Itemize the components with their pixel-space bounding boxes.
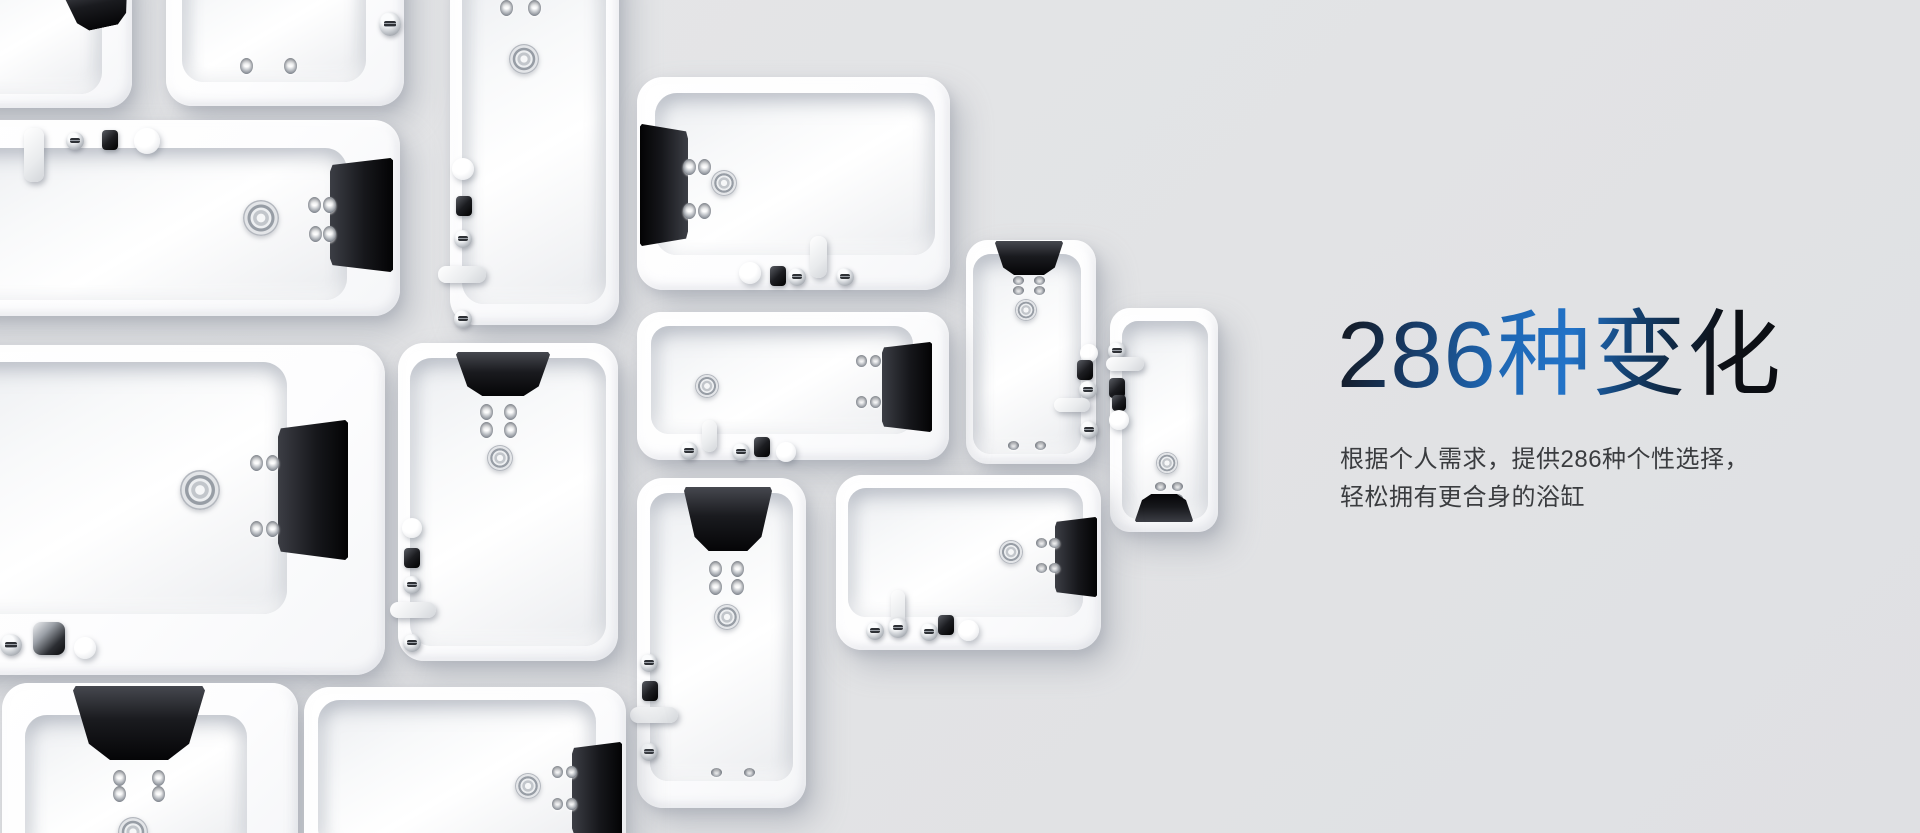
knob-chrome [1080, 421, 1098, 439]
faucet-lever [390, 602, 436, 618]
tub-basin [182, 0, 366, 82]
faucet-lever [810, 236, 827, 278]
knob-dark [102, 130, 118, 150]
faucet-lever [630, 707, 678, 723]
jet-nozzle [1035, 441, 1046, 450]
tub-basin [0, 362, 287, 614]
jet-nozzle [528, 0, 541, 16]
knob-dark [1077, 360, 1093, 380]
jet-nozzle [323, 226, 336, 242]
jet-nozzle [698, 159, 711, 175]
headline-title: 286种变化 [1337, 303, 1782, 406]
jet-nozzle [480, 404, 493, 420]
knob-white [452, 158, 474, 180]
tub-basin [651, 326, 913, 434]
jet-nozzle [698, 203, 711, 219]
jet-nozzle [552, 766, 563, 778]
jet-nozzle [266, 455, 279, 471]
jet-nozzle [856, 396, 867, 408]
drain [714, 604, 740, 630]
headline-subtitle: 根据个人需求，提供286种个性选择， 轻松拥有更合身的浴缸 [1340, 441, 1749, 517]
faucet-lever [24, 128, 44, 182]
headrest-cushion [330, 158, 393, 272]
jet-nozzle [113, 786, 126, 802]
jet-nozzle [683, 203, 696, 219]
knob-chrome [640, 654, 658, 672]
jet-nozzle [566, 798, 577, 810]
jet-nozzle [856, 355, 867, 367]
drain [711, 170, 737, 196]
drain [999, 540, 1023, 564]
knob-chrome [680, 442, 698, 460]
knob-chrome [640, 743, 658, 761]
jet-nozzle [731, 561, 744, 577]
drain [515, 773, 541, 799]
drain [487, 445, 513, 471]
headrest-cushion [1055, 517, 1097, 597]
knob-white [776, 442, 796, 462]
jet-nozzle [480, 422, 493, 438]
jet-nozzle [1013, 286, 1024, 295]
jet-nozzle [1013, 276, 1024, 285]
jet-nozzle [1049, 538, 1060, 548]
knob-white [134, 128, 160, 154]
knob-white [739, 262, 761, 284]
knob-dark [770, 266, 786, 286]
tub-basin [973, 254, 1081, 454]
jet-nozzle [566, 766, 577, 778]
knob-chrome [866, 622, 884, 640]
knob-chrome [1079, 381, 1097, 399]
faucet-lever [1106, 357, 1144, 371]
knob-dark [642, 681, 658, 701]
knob-chrome [788, 268, 806, 286]
jet-nozzle [1034, 286, 1045, 295]
jet-nozzle [1172, 482, 1183, 491]
knob-chrome [66, 132, 84, 150]
jet-nozzle [1008, 441, 1019, 450]
jet-nozzle [1155, 482, 1166, 491]
knob-chrome [836, 268, 854, 286]
jet-nozzle [284, 58, 297, 74]
faucet-lever [1054, 398, 1090, 412]
knob-chrome [379, 12, 401, 36]
subtitle-line-1: 根据个人需求，提供286种个性选择， [1340, 441, 1749, 479]
subtitle-line-2: 轻松拥有更合身的浴缸 [1340, 479, 1749, 517]
jet-nozzle [250, 455, 263, 471]
jet-nozzle [744, 768, 755, 777]
jet-nozzle [683, 159, 696, 175]
jet-nozzle [709, 561, 722, 577]
jet-nozzle [323, 197, 336, 213]
knob-chrome [403, 634, 421, 652]
headrest-cushion [882, 342, 932, 432]
faucet-lever [702, 420, 717, 452]
headrest-cushion [640, 124, 688, 246]
knob-chrome [403, 576, 421, 594]
tub-basin [410, 358, 606, 646]
tub-basin [1122, 321, 1208, 519]
jet-nozzle [1034, 276, 1045, 285]
jet-nozzle [1049, 563, 1060, 573]
knob-white [402, 518, 422, 538]
tub-basin [462, 0, 606, 304]
jet-nozzle [504, 422, 517, 438]
knob-chrome [454, 230, 472, 248]
headrest-cushion [572, 742, 622, 833]
jet-nozzle [711, 768, 722, 777]
drain [695, 374, 719, 398]
jet-nozzle [709, 579, 722, 595]
knob-dark [938, 615, 954, 635]
drain [1156, 452, 1178, 474]
knob-dark [754, 437, 770, 457]
jet-nozzle [731, 579, 744, 595]
knob-white [958, 620, 979, 641]
jet-nozzle [870, 396, 881, 408]
jet-nozzle [309, 226, 322, 242]
drain [509, 44, 539, 74]
drain [180, 470, 220, 510]
jet-nozzle [1036, 538, 1047, 548]
jet-nozzle [308, 197, 321, 213]
knob-chrome [888, 618, 908, 638]
knob-dark [33, 622, 65, 655]
knob-white [1109, 410, 1129, 430]
jet-nozzle [152, 786, 165, 802]
headrest-cushion [278, 420, 348, 560]
tub-basin [655, 93, 935, 255]
jet-nozzle [870, 355, 881, 367]
faucet-lever [438, 266, 486, 283]
knob-dark [1112, 395, 1126, 411]
jet-nozzle [250, 521, 263, 537]
jet-nozzle [552, 798, 563, 810]
knob-chrome [454, 310, 472, 328]
knob-dark [404, 548, 420, 568]
knob-white [74, 637, 96, 659]
jet-nozzle [1036, 563, 1047, 573]
jet-nozzle [240, 58, 253, 74]
jet-nozzle [266, 521, 279, 537]
knob-chrome [732, 443, 750, 461]
drain [243, 200, 279, 236]
knob-dark [456, 196, 472, 216]
tub-basin [0, 148, 347, 300]
tub-basin [848, 488, 1083, 617]
jet-nozzle [113, 770, 126, 786]
knob-chrome [0, 634, 22, 656]
hero-banner: 286种变化 根据个人需求，提供286种个性选择， 轻松拥有更合身的浴缸 [0, 0, 1920, 833]
drain [1015, 299, 1037, 321]
jet-nozzle [504, 404, 517, 420]
knob-chrome [920, 623, 938, 641]
jet-nozzle [500, 0, 513, 16]
jet-nozzle [152, 770, 165, 786]
